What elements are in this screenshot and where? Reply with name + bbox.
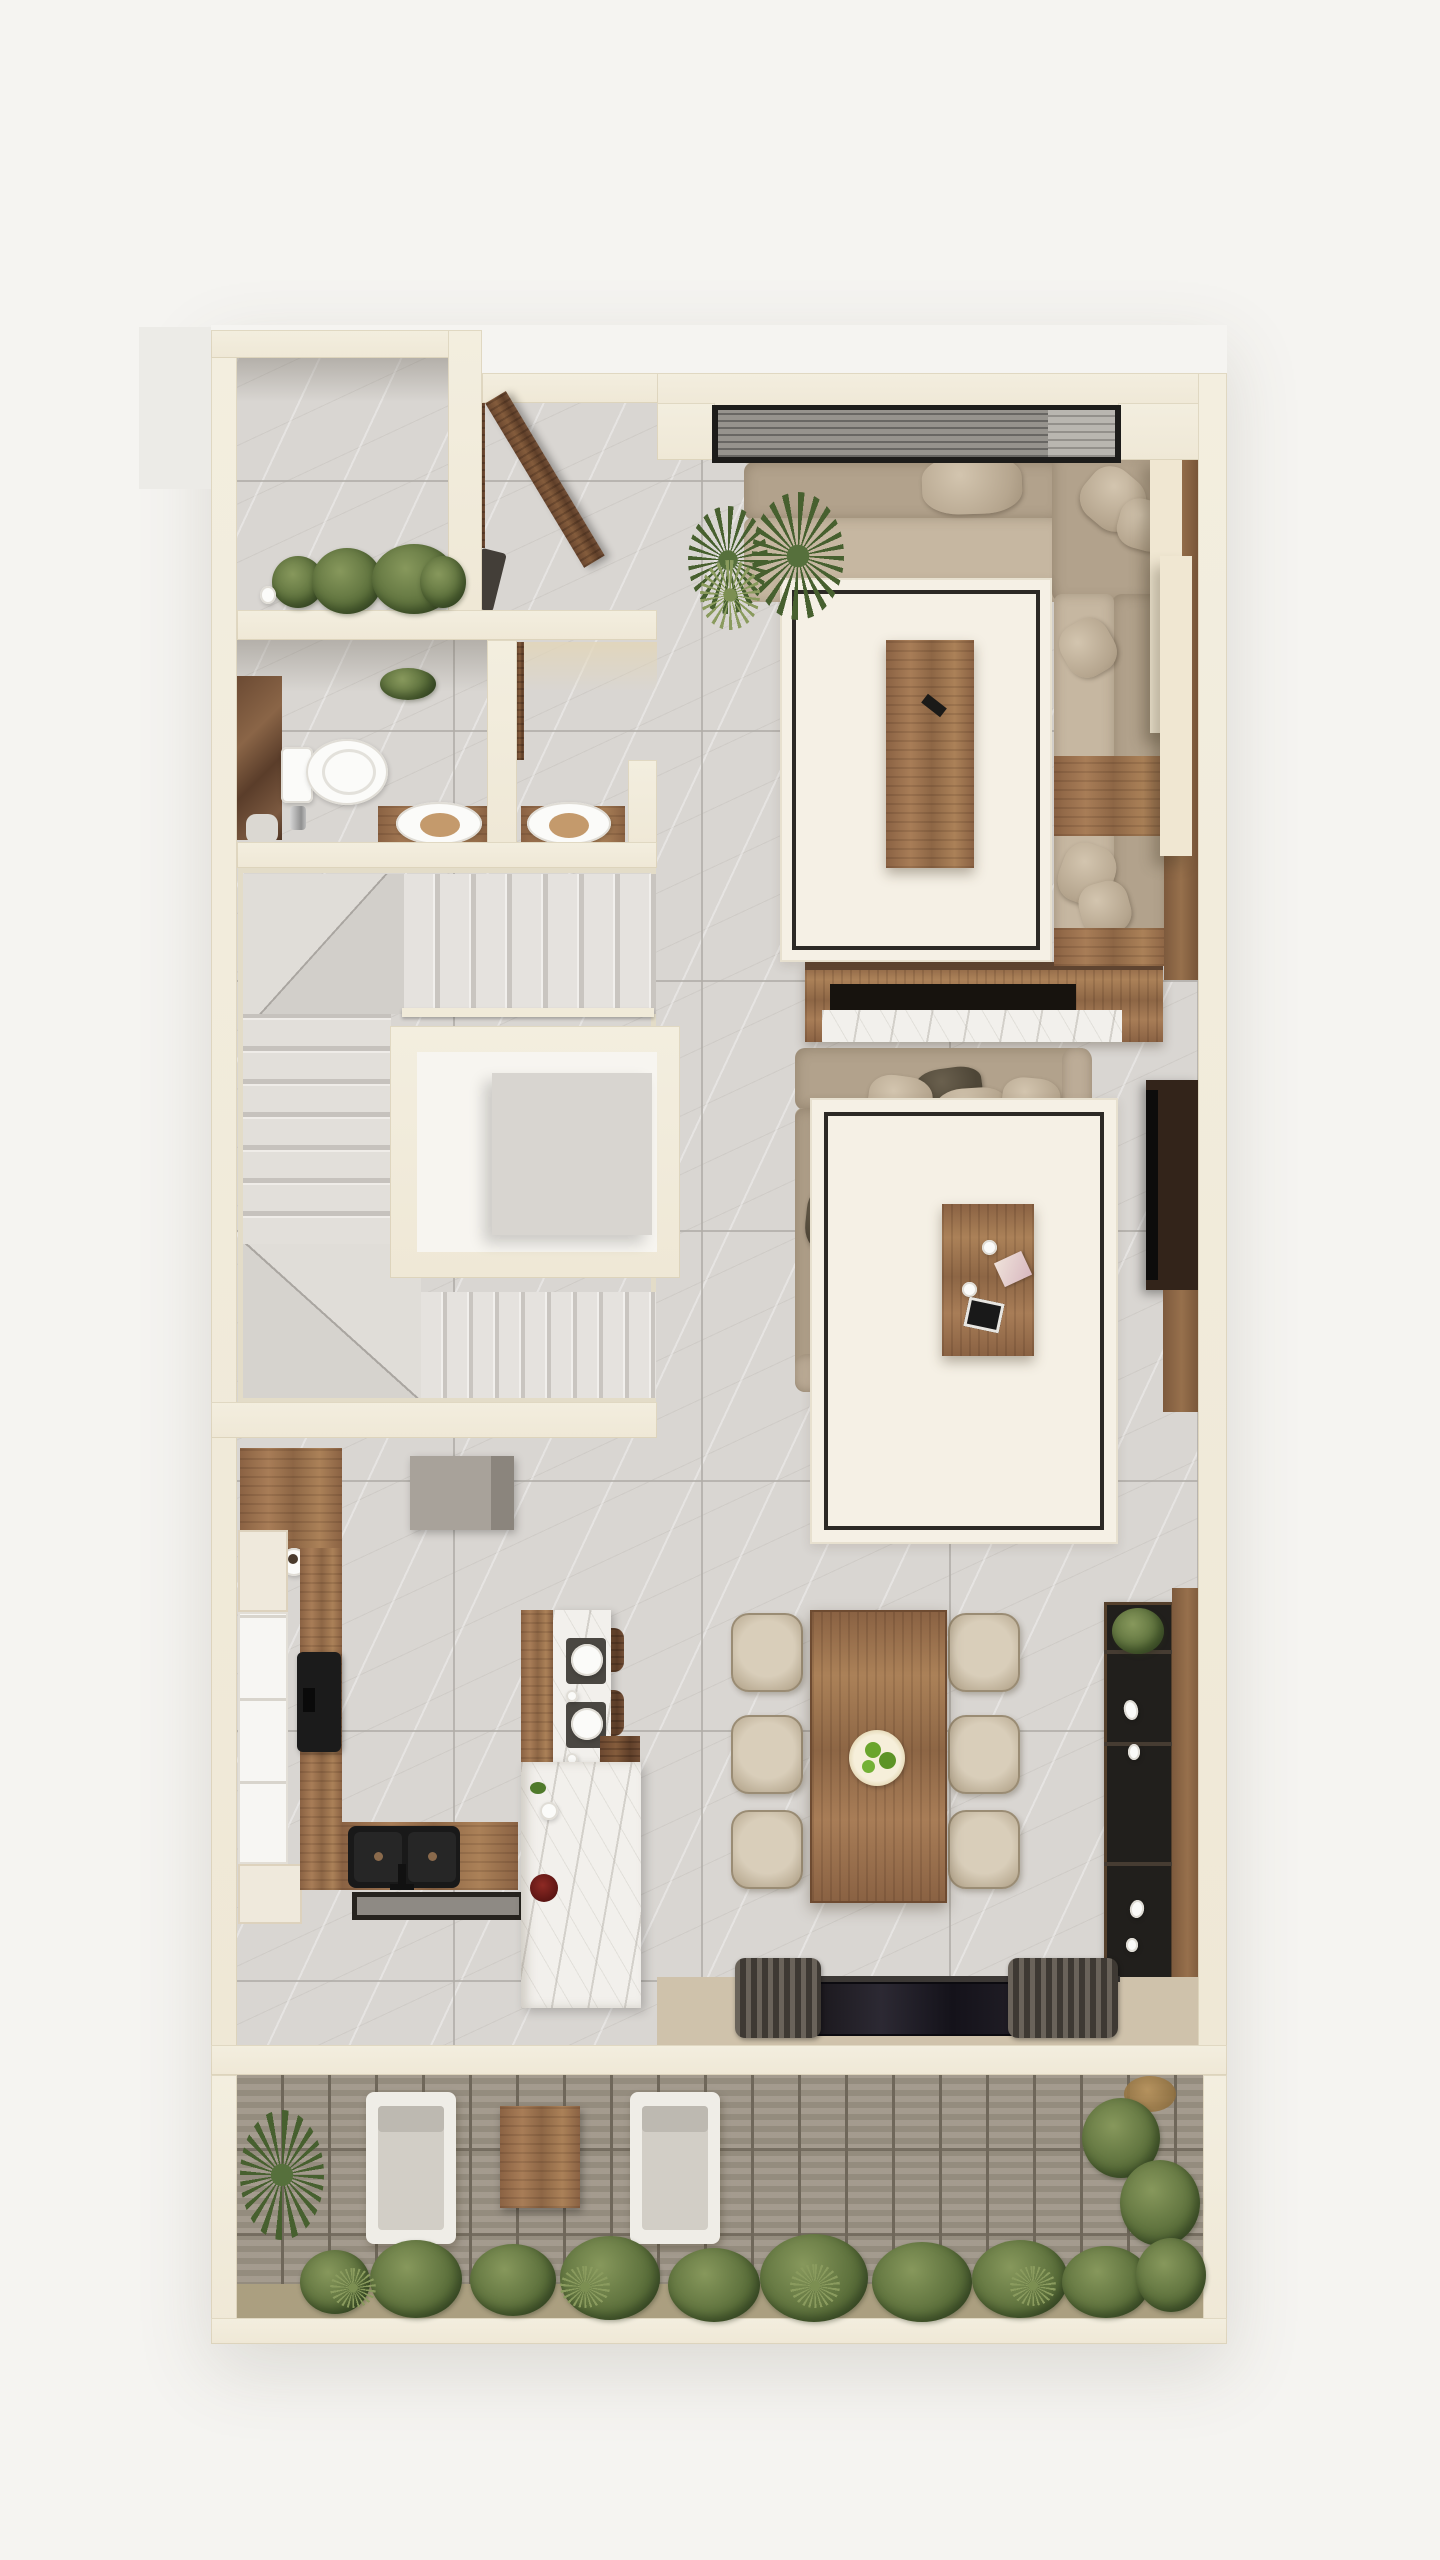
cabinet-ornament-4 <box>1126 1938 1138 1952</box>
island-wood-step <box>600 1736 640 1764</box>
island-cabinet-wood <box>521 1610 553 1768</box>
tv-screen <box>1146 1090 1158 1280</box>
island-garnish <box>530 1782 546 1794</box>
kitchen-appliance-box <box>410 1456 514 1530</box>
island-plate-2 <box>571 1708 603 1740</box>
wall-patio-bottom <box>211 2318 1227 2344</box>
courtyard-pot <box>260 586 276 604</box>
cabinet-ornament-2 <box>1128 1744 1140 1760</box>
stairs-upper-flight <box>404 874 656 1014</box>
wall-kitchen-top <box>211 1402 657 1438</box>
cabinet-plant <box>1112 1608 1164 1654</box>
family-sofa-end-wood <box>1054 928 1168 966</box>
wall-powder-right <box>628 760 657 848</box>
dining-chair-left-1 <box>731 1613 803 1692</box>
dining-apple-2 <box>879 1752 896 1769</box>
wall-right <box>1198 373 1227 2075</box>
patio-right-bush-3 <box>1136 2238 1206 2312</box>
floor-plan-render <box>0 0 1440 2560</box>
patio-bush-2 <box>370 2240 462 2318</box>
display-cabinet-shelf-3 <box>1104 1862 1174 1866</box>
patio-bush-7 <box>872 2242 972 2322</box>
toilet-seat-ring <box>322 749 376 795</box>
bath-divider-plant <box>380 668 436 700</box>
display-cabinet-shelf-2 <box>1104 1742 1174 1746</box>
bath-sink-bowl <box>420 813 460 837</box>
lounger-right-headrest <box>642 2106 708 2132</box>
wall-left <box>211 330 237 2075</box>
patio-bush-3 <box>470 2244 556 2316</box>
stairs-lower-flight <box>421 1292 656 1398</box>
stairs-handrail <box>402 1008 654 1017</box>
family-sofa-headrest <box>921 454 1023 515</box>
patio-spiky-plant <box>240 2110 324 2240</box>
living-cup-1 <box>982 1240 997 1255</box>
wall-bath-top <box>237 610 657 640</box>
dining-chair-right-3 <box>948 1810 1020 1889</box>
stair-void-platform <box>492 1073 652 1235</box>
kitchen-faucet-bar <box>390 1884 414 1890</box>
dining-apple-3 <box>862 1760 875 1773</box>
window-glass-blinds <box>718 410 1048 457</box>
exterior-fin-topleft <box>139 327 211 489</box>
dining-apple-1 <box>865 1742 881 1758</box>
patio-grass-tuft-4 <box>1010 2266 1056 2306</box>
bath-towel <box>246 814 278 844</box>
wall-window-pier-left <box>657 403 715 460</box>
kitchen-sink-drain-right <box>428 1852 437 1861</box>
dining-chair-right-2 <box>948 1715 1020 1794</box>
bath-waste-bin <box>290 806 306 830</box>
living-cup-2 <box>962 1282 977 1297</box>
patio-side-table <box>500 2106 580 2208</box>
tv-cabinet-slats <box>1163 1290 1200 1412</box>
wall-bath-divider <box>487 640 517 846</box>
kitchen-deco-berries <box>288 1554 298 1564</box>
kitchen-upper-cabinet <box>238 1530 288 1612</box>
slider-glass <box>815 1982 1037 2036</box>
stairs-left-flight <box>243 1014 391 1244</box>
island-red-bowl <box>530 1874 558 1902</box>
entry-grass-plant-3 <box>700 560 760 630</box>
kitchen-cooktop-handle <box>303 1688 315 1712</box>
display-cabinet <box>1104 1602 1174 1980</box>
vent-mat-right <box>1008 1958 1118 2038</box>
wall-patio-left <box>211 2075 237 2344</box>
powder-sink-bowl <box>549 813 589 838</box>
powder-door-jamb <box>517 642 524 760</box>
patio-grass-tuft-3 <box>790 2264 840 2308</box>
mask-above-north-wall <box>482 340 1198 373</box>
kitchen-tall-fridge <box>238 1612 288 1864</box>
kitchen-sink-drain-left <box>374 1852 383 1861</box>
patio-grass-tuft-2 <box>560 2266 610 2308</box>
dining-chair-left-2 <box>731 1715 803 1794</box>
courtyard-bush-4 <box>420 556 466 608</box>
patio-grass-tuft-1 <box>330 2268 376 2308</box>
kitchen-lower-cabinet <box>238 1864 302 1924</box>
wall-bath-bottom <box>237 842 657 868</box>
patio-bush-5 <box>668 2248 760 2322</box>
dining-chair-right-1 <box>948 1613 1020 1692</box>
media-console-slot <box>830 984 1076 1012</box>
island-plate-1 <box>571 1644 603 1676</box>
island-cup-1 <box>566 1690 578 1702</box>
living-coffee-table <box>942 1204 1034 1356</box>
dining-chair-left-3 <box>731 1810 803 1889</box>
island-small-plate <box>540 1802 558 1820</box>
window-glass-clear <box>1048 410 1115 457</box>
floating-shelf-lower <box>1160 556 1192 856</box>
lounger-left-headrest <box>378 2106 444 2132</box>
entry-grass-plant-2 <box>752 492 844 620</box>
courtyard-wall-face <box>237 358 450 402</box>
patio-right-bush-2 <box>1120 2160 1200 2246</box>
kitchen-floor-mat <box>352 1892 524 1920</box>
stairs-winder-top-left <box>243 874 404 1014</box>
family-side-table-insert <box>1054 756 1168 836</box>
wall-top-left <box>211 330 458 358</box>
media-console-marble <box>822 1010 1122 1042</box>
powder-wall-face <box>517 642 657 692</box>
dining-fruit-plate <box>849 1730 905 1786</box>
vent-mat-left <box>735 1958 821 2038</box>
wall-south <box>211 2045 1227 2075</box>
wall-window-pier-right <box>1118 403 1200 460</box>
family-coffee-table <box>886 640 974 868</box>
wall-patio-right <box>1203 2075 1227 2344</box>
